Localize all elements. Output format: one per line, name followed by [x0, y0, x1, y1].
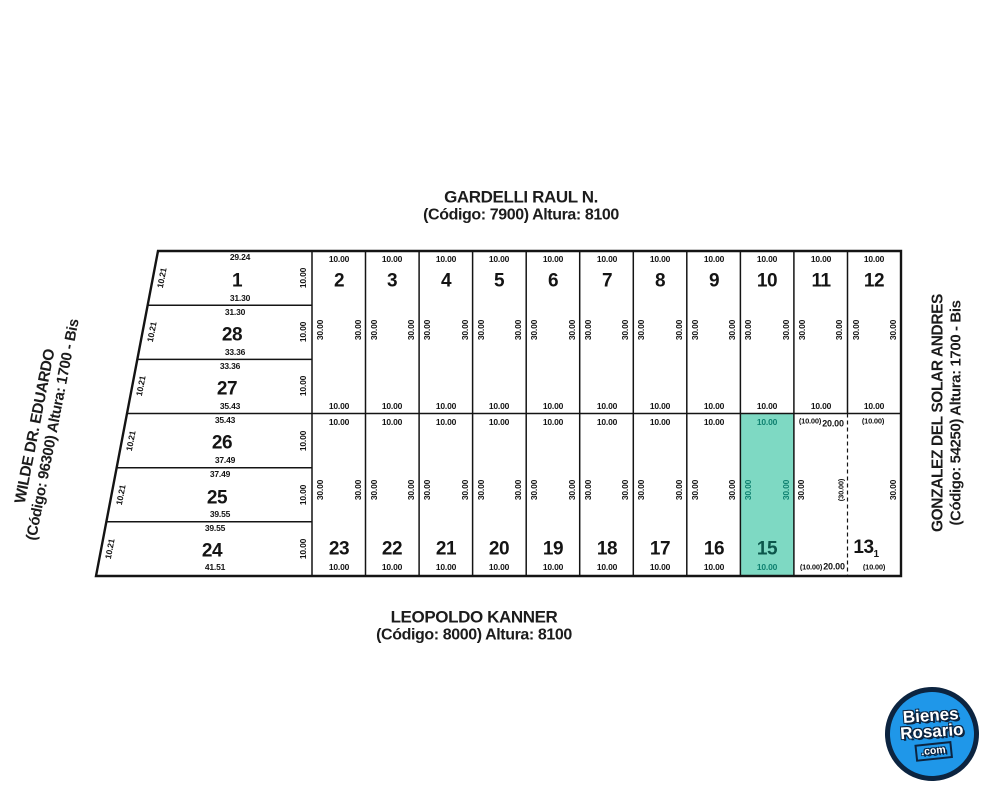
- lot-number-23: 23: [329, 540, 349, 559]
- measurement-label: 10.00: [382, 418, 402, 427]
- measurement-label: 10.00: [543, 418, 563, 427]
- lot-number-7: 7: [602, 272, 612, 291]
- measurement-label: 10.00: [329, 563, 349, 572]
- measurement-label: 10.00: [489, 418, 509, 427]
- measurement-label: 10.00: [543, 402, 563, 411]
- measurement-label: 39.55: [205, 524, 225, 533]
- measurement-label: 10.00: [382, 563, 402, 572]
- measurement-label: 10.00: [299, 539, 308, 559]
- measurement-label: 10.00: [299, 268, 308, 288]
- street-bottom: LEOPOLDO KANNER (Código: 8000) Altura: 8…: [376, 608, 572, 645]
- measurement-label: 30.00: [530, 320, 539, 340]
- street-top-detail: (Código: 7900) Altura: 8100: [423, 207, 619, 225]
- measurement-label: 30.00: [728, 320, 737, 340]
- measurement-label: 30.00: [461, 480, 470, 500]
- measurement-label: 30.00: [423, 480, 432, 500]
- measurement-label: 30.00: [530, 480, 539, 500]
- measurement-label: 30.00: [675, 480, 684, 500]
- measurement-label: 10.00: [299, 322, 308, 342]
- measurement-label: 10.00: [382, 402, 402, 411]
- measurement-label: 10.00: [864, 402, 884, 411]
- parcel-map-canvas: GARDELLI RAUL N. (Código: 7900) Altura: …: [0, 0, 1000, 800]
- measurement-label: (10.00): [862, 417, 884, 425]
- measurement-label: 10.00: [597, 563, 617, 572]
- lot-number-6: 6: [548, 272, 558, 291]
- measurement-label: 10.00: [650, 418, 670, 427]
- lot-number-9: 9: [709, 272, 719, 291]
- street-right-name: GONZALEZ DEL SOLAR ANDRES: [929, 294, 948, 532]
- measurement-label: 30.00: [370, 480, 379, 500]
- measurement-label: 10.00: [704, 563, 724, 572]
- measurement-label: 10.00: [329, 255, 349, 264]
- lot-number-19: 19: [543, 540, 563, 559]
- measurement-label: 30.00: [514, 480, 523, 500]
- measurement-label: 30.00: [675, 320, 684, 340]
- lot-number-25: 25: [207, 489, 227, 508]
- measurement-label: 41.51: [205, 563, 225, 572]
- logo-line2: Rosario: [900, 722, 964, 742]
- measurement-label: 10.00: [811, 402, 831, 411]
- measurement-label: 10.00: [382, 255, 402, 264]
- measurement-label: 30.00: [889, 480, 898, 500]
- measurement-label: 10.00: [489, 563, 509, 572]
- measurement-label: 30.00: [637, 320, 646, 340]
- measurement-label: 10.00: [811, 255, 831, 264]
- measurement-label: 10.00: [299, 376, 308, 396]
- measurement-label: 10.00: [704, 402, 724, 411]
- lot-number-20: 20: [489, 540, 509, 559]
- measurement-label: 20.00: [823, 563, 845, 572]
- measurement-label: 30.00: [621, 480, 630, 500]
- measurement-label: 10.00: [757, 255, 777, 264]
- measurement-label: 10.00: [597, 418, 617, 427]
- measurement-label: 39.55: [210, 510, 230, 519]
- lot-number-4: 4: [441, 272, 451, 291]
- measurement-label: 30.00: [728, 480, 737, 500]
- measurement-label: 10.00: [704, 255, 724, 264]
- street-right: GONZALEZ DEL SOLAR ANDRES (Código: 54250…: [929, 294, 966, 532]
- lot-number-21: 21: [436, 540, 456, 559]
- lot-number-2: 2: [334, 272, 344, 291]
- lot-number-3: 3: [387, 272, 397, 291]
- measurement-label: 30.00: [797, 480, 806, 500]
- measurement-label: 30.00: [782, 480, 791, 500]
- measurement-label: 10.00: [757, 418, 777, 427]
- measurement-label: 10.00: [757, 563, 777, 572]
- measurement-label: 35.43: [220, 402, 240, 411]
- lot-13-subscript: 1: [874, 549, 879, 560]
- measurement-label: 33.36: [220, 362, 240, 371]
- measurement-label: 10.00: [650, 255, 670, 264]
- measurement-label: 10.00: [650, 402, 670, 411]
- measurement-label: 10.00: [329, 402, 349, 411]
- measurement-label: (10.00): [863, 563, 885, 571]
- measurement-label: 30.00: [477, 320, 486, 340]
- lot-number-12: 12: [864, 272, 884, 291]
- logo-dotcom: .com: [914, 741, 952, 762]
- measurement-label: 30.00: [691, 480, 700, 500]
- lot-number-18: 18: [597, 540, 617, 559]
- measurement-label: 33.36: [225, 348, 245, 357]
- measurement-label: 10.00: [597, 255, 617, 264]
- measurement-label: 30.00: [477, 480, 486, 500]
- measurement-label: 10.00: [489, 402, 509, 411]
- measurement-label: 29.24: [230, 253, 250, 262]
- lot-number-17: 17: [650, 540, 670, 559]
- street-right-detail: (Código: 54250) Altura: 1700 - Bis: [948, 294, 966, 532]
- measurement-label: 10.00: [650, 563, 670, 572]
- lot-number-26: 26: [212, 434, 232, 453]
- lot-number-11: 11: [811, 272, 830, 291]
- lot-number-13: 13: [853, 537, 873, 558]
- measurement-label: 30.00: [568, 480, 577, 500]
- measurement-label: 10.00: [704, 418, 724, 427]
- measurement-label: 30.00: [889, 320, 898, 340]
- measurement-label: 30.00: [354, 480, 363, 500]
- measurement-label: 10.00: [436, 255, 456, 264]
- measurement-label: 30.00: [407, 480, 416, 500]
- measurement-label: 10.00: [489, 255, 509, 264]
- lot-number-1: 1: [232, 272, 242, 291]
- measurement-label: 30.00: [584, 480, 593, 500]
- measurement-label: 31.30: [230, 294, 250, 303]
- measurement-label: 30.00: [568, 320, 577, 340]
- street-top: GARDELLI RAUL N. (Código: 7900) Altura: …: [423, 188, 619, 225]
- measurement-label: 10.00: [757, 402, 777, 411]
- lot-number-16: 16: [704, 540, 724, 559]
- measurement-label: 10.00: [543, 563, 563, 572]
- measurement-label: 30.00: [584, 320, 593, 340]
- measurement-label: 30.00: [423, 320, 432, 340]
- street-bottom-name: LEOPOLDO KANNER: [376, 608, 572, 627]
- lot-number-15: 15: [757, 540, 777, 559]
- measurement-label: 30.00: [691, 320, 700, 340]
- lot-number-13-1: 131: [853, 538, 878, 560]
- measurement-label: 35.43: [215, 416, 235, 425]
- lot-number-24: 24: [202, 542, 222, 561]
- measurement-label: 30.00: [354, 320, 363, 340]
- measurement-label: 10.00: [299, 431, 308, 451]
- measurement-label: 37.49: [215, 456, 235, 465]
- measurement-label: 10.00: [299, 485, 308, 505]
- measurement-label: 30.00: [316, 480, 325, 500]
- lot-number-28: 28: [222, 326, 242, 345]
- measurement-label: (10.00): [800, 563, 822, 571]
- lot-number-27: 27: [217, 380, 237, 399]
- measurement-label: 30.00: [852, 320, 861, 340]
- lot-number-22: 22: [382, 540, 402, 559]
- measurement-label: 30.00: [798, 320, 807, 340]
- measurement-label: (10.00): [799, 417, 821, 425]
- measurement-label: 30.00: [835, 320, 844, 340]
- measurement-label: 30.00: [514, 320, 523, 340]
- measurement-label: 20.00: [822, 420, 844, 429]
- measurement-label: 10.00: [543, 255, 563, 264]
- measurement-label: 31.30: [225, 308, 245, 317]
- lot-number-5: 5: [494, 272, 504, 291]
- lot-number-8: 8: [655, 272, 665, 291]
- measurement-label: 10.00: [436, 418, 456, 427]
- street-top-name: GARDELLI RAUL N.: [423, 188, 619, 207]
- measurement-label: 30.00: [370, 320, 379, 340]
- measurement-label: 10.00: [597, 402, 617, 411]
- measurement-label: 30.00: [316, 320, 325, 340]
- measurement-label: 30.00: [744, 480, 753, 500]
- measurement-label: 10.00: [436, 402, 456, 411]
- measurement-label: 30.00: [782, 320, 791, 340]
- measurement-label: 30.00: [407, 320, 416, 340]
- measurement-label: 10.00: [864, 255, 884, 264]
- lot-number-10: 10: [757, 272, 777, 291]
- street-bottom-detail: (Código: 8000) Altura: 8100: [376, 627, 572, 645]
- measurement-label: 37.49: [210, 470, 230, 479]
- measurement-label: 10.00: [436, 563, 456, 572]
- measurement-label: 10.00: [329, 418, 349, 427]
- measurement-label: 30.00: [637, 480, 646, 500]
- measurement-label: 30.00: [461, 320, 470, 340]
- measurement-label: 30.00: [744, 320, 753, 340]
- measurement-label: 30.00: [621, 320, 630, 340]
- measurement-label: (30.00): [837, 479, 845, 501]
